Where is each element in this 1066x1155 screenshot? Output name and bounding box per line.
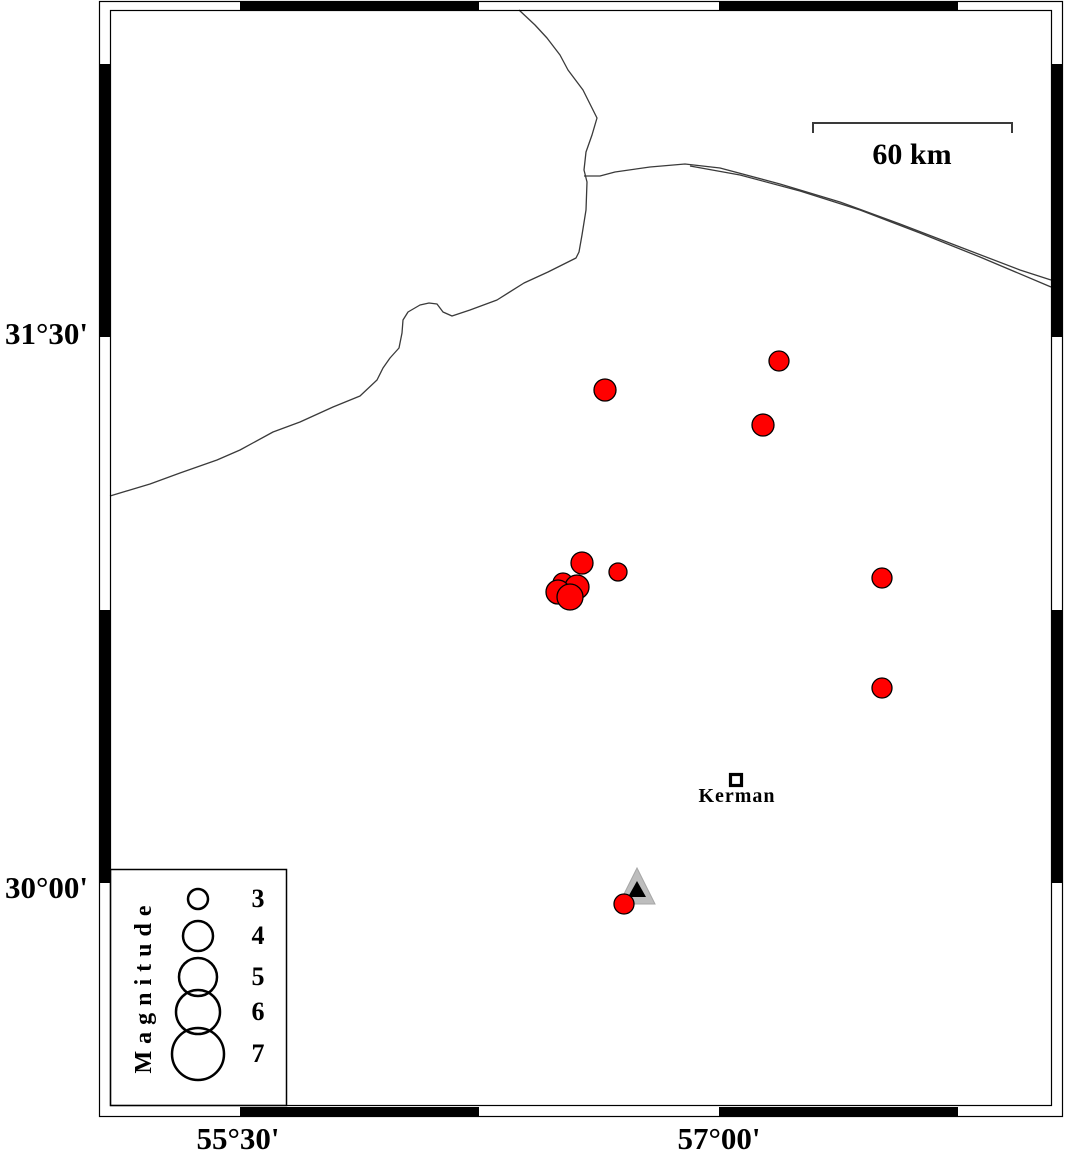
earthquake-marker — [614, 894, 634, 914]
legend-mag-3-label: 3 — [236, 884, 280, 914]
border-line-east — [584, 164, 1051, 280]
city-square-icon — [731, 775, 742, 786]
legend-title: Magnitude — [131, 876, 159, 1096]
seismicity-map-page: 31°30' 30°00' 55°30' 57°00' 60 km Kerman… — [0, 0, 1066, 1155]
scale-bar — [813, 123, 1012, 133]
earthquake-marker — [752, 414, 774, 436]
earthquake-marker — [571, 552, 593, 574]
earthquake-markers — [546, 351, 892, 914]
legend-mag-7-label: 7 — [236, 1039, 280, 1069]
earthquake-marker — [872, 678, 892, 698]
earthquake-marker — [609, 563, 627, 581]
border-lines — [110, 10, 1051, 496]
scale-bar-label: 60 km — [842, 138, 982, 172]
city-marker — [731, 775, 742, 786]
legend-mag-5-label: 5 — [236, 962, 280, 992]
legend-mag-6-label: 6 — [236, 997, 280, 1027]
lon-label-57-00: 57°00' — [649, 1121, 789, 1155]
scale-bar-bracket — [813, 123, 1012, 133]
earthquake-marker — [769, 351, 789, 371]
earthquake-marker — [557, 584, 583, 610]
legend-mag-4-label: 4 — [236, 921, 280, 951]
lon-label-55-30: 55°30' — [168, 1121, 308, 1155]
lat-label-30-00: 30°00' — [0, 870, 88, 906]
earthquake-marker — [594, 379, 616, 401]
border-line-north — [110, 10, 597, 496]
earthquake-marker — [872, 568, 892, 588]
map-canvas — [0, 0, 1066, 1155]
city-label: Kerman — [667, 785, 807, 808]
border-line-east-parallel — [690, 166, 1051, 287]
lat-label-31-30: 31°30' — [0, 316, 88, 352]
